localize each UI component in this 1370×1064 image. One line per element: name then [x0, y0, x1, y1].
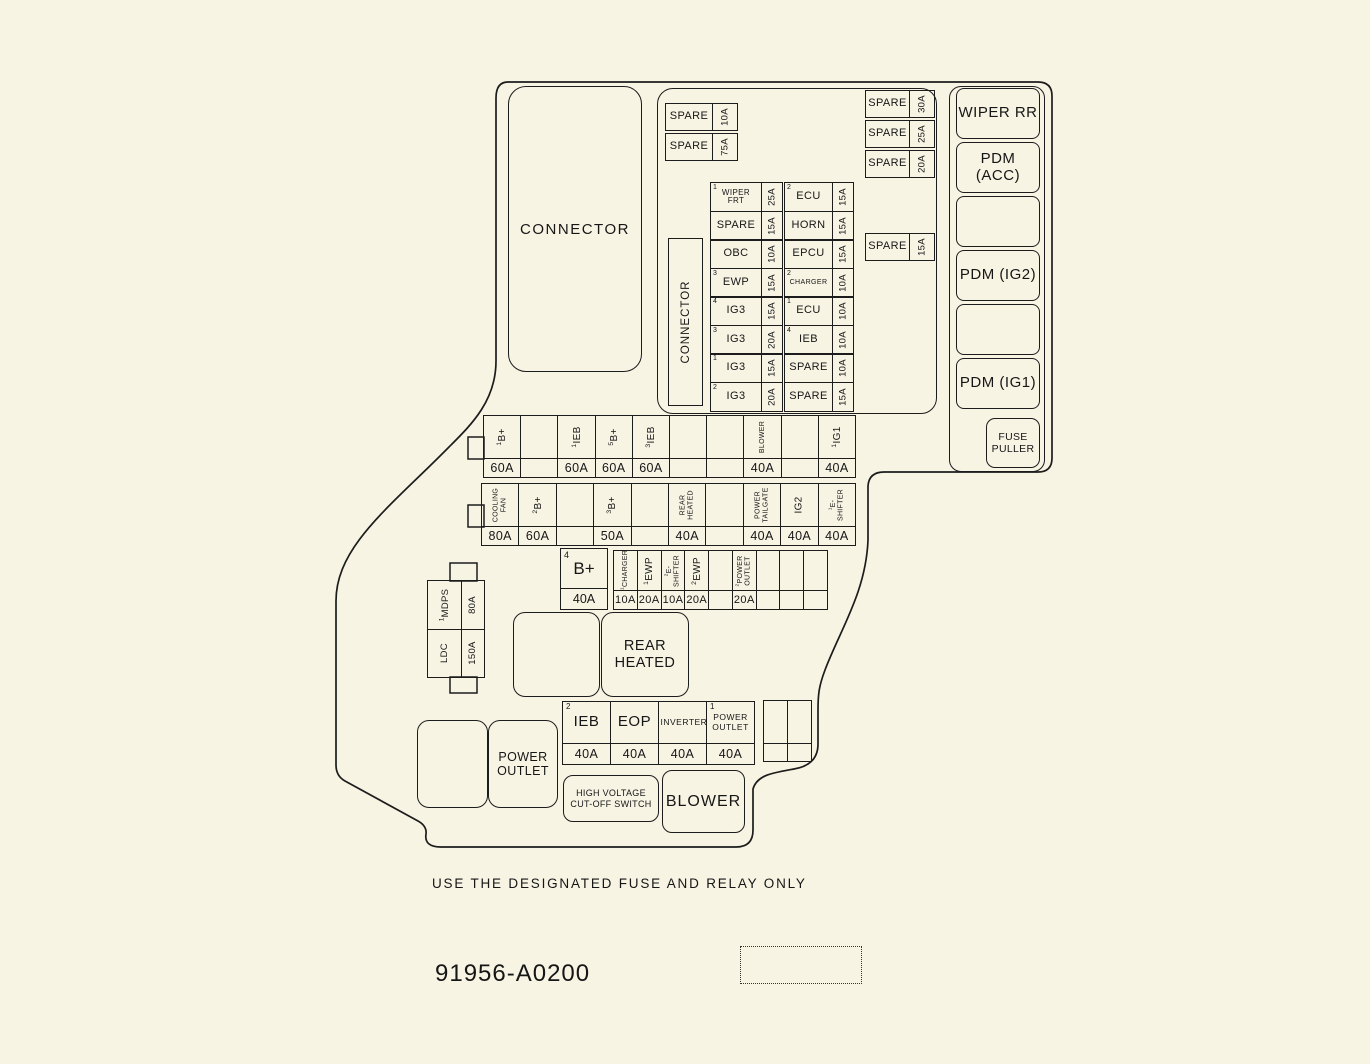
cell-label-area: BLOWER: [744, 416, 780, 458]
cell-label-area: 2E- SHIFTER: [662, 551, 685, 590]
bottom-fuse-row: 2IEB40AEOP40AINVERTER40A1POWER OUTLET40A: [562, 701, 755, 765]
cell-label-area: 2POWER OUTLET: [733, 551, 756, 590]
cell-b+: 1B+60A: [484, 416, 520, 477]
hv-switch-line2: CUT-OFF SWITCH: [570, 799, 651, 809]
big-bplus-label: B+: [573, 559, 594, 579]
cell-empty: [669, 416, 706, 477]
fuse-amp: 10A: [767, 245, 778, 263]
empty-relay-box-2: [417, 720, 488, 808]
fuse-label: IG3: [727, 391, 746, 402]
fuse-sup: 4: [713, 298, 717, 305]
fuse-amp: 20A: [917, 155, 928, 173]
cell-amp: 40A: [669, 526, 705, 545]
hv-switch-line1: HIGH VOLTAGE: [570, 788, 651, 798]
cell-label-area: 1IEB: [558, 416, 594, 458]
cell-amp: 40A: [744, 458, 780, 477]
blower-label: BLOWER: [666, 793, 741, 811]
cell-label-area: EOP: [611, 702, 658, 743]
pdm-box-wiper-rr: WIPER RR: [956, 88, 1040, 139]
main-connector-box: CONNECTOR: [508, 86, 642, 372]
relay-row1-tab: [468, 437, 484, 459]
cell-amp: [782, 458, 818, 477]
fuse-amp: 10A: [838, 302, 849, 320]
fuse-ig3: 2IG320A: [710, 382, 783, 412]
fuse-amp: 25A: [767, 188, 778, 206]
label-placeholder-box: [740, 946, 862, 984]
cell-amp: [757, 590, 780, 609]
cell-label-area: INVERTER: [659, 702, 706, 743]
cell-power-outlet: 2POWER OUTLET20A: [732, 551, 756, 609]
fuse-label: SPARE: [789, 391, 827, 402]
fuse-label: EPCU: [792, 248, 824, 259]
fuse-spare: SPARE30A: [865, 90, 935, 118]
fuse-amp: 15A: [767, 274, 778, 292]
fuse-amp: 15A: [838, 388, 849, 406]
fuse-label: SPARE: [868, 98, 906, 109]
cell-label-area: [670, 416, 706, 458]
power-outlet-box: POWER OUTLET: [488, 720, 558, 808]
fuse-amp-cell: 15A: [832, 212, 853, 240]
fuse-spare: SPARE15A: [784, 382, 854, 412]
fuse-sup: 2: [787, 184, 791, 191]
cell-label: 5B+: [608, 416, 620, 458]
fuse-sup: 2: [787, 270, 791, 277]
part-number: 91956-A0200: [435, 960, 590, 988]
fuse-label: IG3: [727, 362, 746, 373]
cell-amp: 80A: [482, 526, 518, 545]
fuse-label-cell: 2IG3: [711, 383, 761, 411]
hv-cutoff-switch-box: HIGH VOLTAGE CUT-OFF SWITCH: [563, 775, 659, 822]
fuse-amp-cell: 20A: [909, 151, 934, 177]
cell-label: POWER TAILGATE: [754, 484, 769, 526]
cell-empty: [756, 551, 780, 609]
cell-label-area: [780, 551, 803, 590]
empty-fuse-grid: [763, 700, 812, 762]
fuse-amp-cell: 75A: [712, 134, 737, 160]
fuse-label-cell: SPARE: [785, 383, 832, 411]
ldc-mdps-block: 1MDPS 80A LDC 150A: [427, 580, 485, 678]
cell-label-area: [521, 416, 557, 458]
cell-label-area: REAR HEATED: [669, 484, 705, 526]
cell-sup: 1: [831, 443, 838, 447]
fuse-spare: SPARE25A: [865, 120, 935, 148]
cell-amp: 60A: [633, 458, 669, 477]
cell-ewp: 2EWP20A: [684, 551, 708, 609]
cell-power-outlet: 1POWER OUTLET40A: [706, 702, 754, 764]
ldc-amp: 150A: [468, 630, 478, 676]
cell-amp: 40A: [563, 743, 610, 764]
mdps-label: MDPS: [439, 588, 450, 617]
fuse-ecu: 2ECU15A: [784, 182, 854, 212]
fuse-label: SPARE: [789, 362, 827, 373]
cell-sup: 2: [736, 583, 741, 586]
fuse-grid-col-a: 1WIPER FRT25ASPARE15AOBC10A3EWP15A4IG315…: [710, 182, 783, 412]
fuse-label-cell: 2ECU: [785, 183, 832, 211]
cell-label: 1E- SHIFTER: [829, 484, 846, 526]
cell-label: IG2: [794, 484, 805, 526]
fuse-spare: SPARE15A: [710, 211, 783, 241]
cell-inverter: INVERTER40A: [658, 702, 706, 764]
cell-label-area: 1CHARGER: [614, 551, 637, 590]
cell-label-area: [557, 484, 593, 526]
cell-empty: [631, 484, 668, 545]
fuse-label-cell: SPARE: [866, 151, 909, 177]
cell-amp: 40A: [819, 458, 855, 477]
fuse-label-cell: 1IG3: [711, 354, 761, 382]
cell-amp: [709, 590, 732, 609]
cell-amp: [632, 526, 668, 545]
fuse-ecu: 1ECU10A: [784, 296, 854, 326]
cell-amp: [706, 526, 742, 545]
fuse-label-cell: 4IG3: [711, 297, 761, 325]
cell-sup: 1: [621, 587, 626, 590]
cell-amp: [780, 590, 803, 609]
cell-ieb: 1IEB60A: [557, 416, 594, 477]
cell-amp: [521, 458, 557, 477]
cell-label-area: 3B+: [594, 484, 630, 526]
fuse-amp-cell: 30A: [909, 91, 934, 117]
cell-label: BLOWER: [759, 416, 767, 458]
right-column: WIPER RRPDM (ACC)PDM (IG2)PDM (IG1): [956, 88, 1040, 412]
mid-spare: SPARE15A: [865, 233, 935, 263]
cell-sup: 3: [645, 443, 652, 447]
power-outlet-label: POWER OUTLET: [497, 750, 549, 779]
cell-amp: 40A: [744, 526, 780, 545]
small-fuse-strip: 1CHARGER10A1EWP20A2E- SHIFTER10A2EWP20A2…: [613, 550, 828, 610]
fuse-sup: 1: [713, 355, 717, 362]
fuse-label-cell: 1ECU: [785, 297, 832, 325]
fuse-charger: 2CHARGER10A: [784, 268, 854, 298]
cell-label-area: [709, 551, 732, 590]
fuse-amp-cell: 10A: [761, 240, 782, 268]
cell-empty: [705, 484, 742, 545]
cell-label-area: 1POWER OUTLET: [707, 702, 754, 743]
cell-label-area: 3IEB: [633, 416, 669, 458]
cell-amp: 10A: [614, 590, 637, 609]
mdps-fuse: 1MDPS 80A: [428, 581, 484, 629]
cell-label-area: POWER TAILGATE: [744, 484, 780, 526]
fuse-label-cell: SPARE: [866, 91, 909, 117]
fuse-epcu: EPCU15A: [784, 239, 854, 269]
fuse-label-cell: 2CHARGER: [785, 269, 832, 297]
mdps-amp: 80A: [468, 582, 478, 628]
cell-b+: 3B+50A: [593, 484, 630, 545]
fuse-ig3: 3IG320A: [710, 325, 783, 355]
cell-label-area: 2B+: [519, 484, 555, 526]
cell-empty: [781, 416, 818, 477]
cell-empty: [556, 484, 593, 545]
cell-label: COOLING FAN: [493, 484, 508, 526]
cell-amp: 40A: [659, 743, 706, 764]
cell-sup: 2: [665, 573, 670, 576]
fuse-amp: 25A: [917, 125, 928, 143]
cell-label-area: 2EWP: [685, 551, 708, 590]
cell-b+: 2B+60A: [518, 484, 555, 545]
fuse-amp: 15A: [767, 302, 778, 320]
cell-amp: 60A: [596, 458, 632, 477]
fuse-amp: 75A: [720, 138, 731, 156]
big-bplus-amp: 40A: [561, 588, 607, 609]
pdm-box-empty: [956, 196, 1040, 247]
fuse-amp: 15A: [838, 188, 849, 206]
cell-amp: 60A: [519, 526, 555, 545]
fuse-label: SPARE: [670, 141, 708, 152]
cell-label: EOP: [618, 714, 651, 731]
fuse-amp: 10A: [838, 331, 849, 349]
cell-b+: 5B+60A: [595, 416, 632, 477]
fuse-amp: 15A: [838, 245, 849, 263]
fuse-spare: SPARE10A: [665, 103, 738, 131]
fuse-amp-cell: 25A: [761, 183, 782, 211]
fuse-amp-cell: 10A: [832, 354, 853, 382]
fuse-amp-cell: 15A: [832, 383, 853, 411]
fuse-label-cell: SPARE: [866, 121, 909, 147]
cell-sup: 1: [710, 703, 714, 712]
empty-relay-box-1: [513, 612, 600, 697]
fuse-amp: 10A: [838, 274, 849, 292]
fuse-amp: 10A: [838, 359, 849, 377]
cell-ewp: 1EWP20A: [637, 551, 661, 609]
blower-box: BLOWER: [662, 770, 745, 833]
fuse-label-cell: SPARE: [666, 104, 712, 130]
cell-ig1: 1IG140A: [818, 416, 855, 477]
pdm-box-pdm-acc: PDM (ACC): [956, 142, 1040, 193]
fuse-sup: 3: [713, 327, 717, 334]
fuse-puller-label: FUSE PULLER: [989, 431, 1037, 455]
fuse-label: SPARE: [868, 241, 906, 252]
cell-power-tailgate: POWER TAILGATE40A: [743, 484, 780, 545]
relay-row-1: 1B+60A1IEB60A5B+60A3IEB60ABLOWER40A1IG14…: [483, 415, 856, 478]
fuse-amp-cell: 15A: [761, 269, 782, 297]
cell-e-shifter: 1E- SHIFTER40A: [818, 484, 855, 545]
fuse-label-cell: SPARE: [666, 134, 712, 160]
fuse-label: ECU: [796, 305, 820, 316]
cell-amp: 20A: [733, 590, 756, 609]
side-block-top-tab: [450, 563, 477, 581]
cell-amp: 40A: [819, 526, 855, 545]
fuse-label: OBC: [723, 248, 748, 259]
fuse-amp-cell: 15A: [909, 234, 934, 260]
fuse-label: IEB: [799, 334, 818, 345]
cell-label-area: [782, 416, 818, 458]
rear-heated-box: REAR HEATED: [601, 612, 689, 697]
cell-label: 1EWP: [643, 552, 655, 590]
cell-amp: [670, 458, 706, 477]
fuse-wiper-frt: 1WIPER FRT25A: [710, 182, 783, 212]
cell-label-area: 1B+: [484, 416, 520, 458]
fuse-label: SPARE: [868, 158, 906, 169]
cell-ieb: 2IEB40A: [563, 702, 610, 764]
fuse-amp: 20A: [767, 331, 778, 349]
cell-label: 2B+: [531, 484, 543, 526]
cell-label: 3B+: [606, 484, 618, 526]
cell-label-area: [804, 551, 827, 590]
cell-charger: 1CHARGER10A: [614, 551, 637, 609]
fuse-amp-cell: 10A: [832, 269, 853, 297]
cell-sup: 2: [531, 510, 538, 514]
fuse-sup: 3: [713, 270, 717, 277]
cell-rear-heated: REAR HEATED40A: [668, 484, 705, 545]
cell-amp: 20A: [638, 590, 661, 609]
cell-label-area: 1IG1: [819, 416, 855, 458]
cell-label: 2POWER OUTLET: [736, 552, 753, 590]
cell-label: IEB: [574, 714, 600, 731]
fuse-label: SPARE: [717, 220, 755, 231]
fuse-label: SPARE: [670, 111, 708, 122]
cell-label: 2EWP: [691, 552, 703, 590]
cell-ig2: IG240A: [780, 484, 817, 545]
cell-empty: [803, 551, 827, 609]
warning-text: USE THE DESIGNATED FUSE AND RELAY ONLY: [432, 876, 807, 891]
cell-amp: 60A: [484, 458, 520, 477]
fuse-amp-cell: 10A: [832, 297, 853, 325]
fuse-puller-box: FUSE PULLER: [986, 418, 1040, 468]
cell-amp: [557, 526, 593, 545]
fuse-amp-cell: 25A: [909, 121, 934, 147]
fuse-label: HORN: [792, 220, 826, 231]
fuse-spare: SPARE75A: [665, 133, 738, 161]
cell-label-area: [706, 484, 742, 526]
fuse-amp-cell: 20A: [761, 326, 782, 354]
vertical-connector-box: CONNECTOR: [668, 238, 703, 406]
fuse-amp-cell: 10A: [832, 326, 853, 354]
fuse-spare: SPARE20A: [865, 150, 935, 178]
fuse-sup: 1: [713, 184, 717, 191]
cell-label: 1IG1: [831, 416, 843, 458]
relay-row-2: COOLING FAN80A2B+60A3B+50AREAR HEATED40A…: [481, 483, 856, 546]
cell-label: REAR HEATED: [680, 484, 695, 526]
fuse-amp: 30A: [917, 95, 928, 113]
big-bplus-sup: 4: [564, 550, 569, 560]
ldc-fuse: LDC 150A: [428, 629, 484, 678]
fuse-amp: 15A: [767, 217, 778, 235]
fuse-obc: OBC10A: [710, 239, 783, 269]
cell-amp: [707, 458, 743, 477]
cell-label-area: [707, 416, 743, 458]
fuse-amp-cell: 15A: [832, 183, 853, 211]
cell-empty: [520, 416, 557, 477]
fuse-ig3: 4IG315A: [710, 296, 783, 326]
cell-eop: EOP40A: [610, 702, 658, 764]
fuse-label-cell: SPARE: [785, 354, 832, 382]
fuse-label-cell: SPARE: [711, 212, 761, 240]
fuse-amp-cell: 20A: [761, 383, 782, 411]
cell-amp: 20A: [685, 590, 708, 609]
fuse-amp-cell: 15A: [761, 354, 782, 382]
fuse-sup: 1: [787, 298, 791, 305]
fuse-amp: 20A: [767, 388, 778, 406]
cell-label: 1B+: [496, 416, 508, 458]
fuse-amp-cell: 15A: [761, 297, 782, 325]
cell-label: 1IEB: [570, 416, 582, 458]
cell-sup: 3: [606, 510, 613, 514]
fuse-label: IG3: [727, 305, 746, 316]
cell-empty: [779, 551, 803, 609]
fuse-amp-cell: 15A: [761, 212, 782, 240]
fuse-spare: SPARE10A: [784, 353, 854, 383]
fuse-spare: SPARE15A: [865, 233, 935, 261]
cell-amp: 50A: [594, 526, 630, 545]
fuse-label-cell: SPARE: [866, 234, 909, 260]
fuse-label: SPARE: [868, 128, 906, 139]
cell-amp: 40A: [707, 743, 754, 764]
fuse-sup: 4: [787, 327, 791, 334]
cell-sup: 1: [570, 443, 577, 447]
cell-label-area: 2IEB: [563, 702, 610, 743]
fuse-label: CHARGER: [790, 279, 828, 286]
cell-sup: 2: [566, 703, 570, 712]
fuse-label: ECU: [796, 191, 820, 202]
cell-label: 3IEB: [645, 416, 657, 458]
cell-blower: BLOWER40A: [743, 416, 780, 477]
cell-ieb: 3IEB60A: [632, 416, 669, 477]
fuse-label-cell: 3IG3: [711, 326, 761, 354]
top-left-spares: SPARE10ASPARE75A: [665, 103, 738, 163]
cell-label-area: 1E- SHIFTER: [819, 484, 855, 526]
cell-amp: 60A: [558, 458, 594, 477]
cell-amp: 40A: [611, 743, 658, 764]
cell-label: POWER OUTLET: [709, 713, 753, 732]
cell-amp: [804, 590, 827, 609]
cell-amp: 40A: [781, 526, 817, 545]
fuse-label: IG3: [727, 334, 746, 345]
cell-label-area: IG2: [781, 484, 817, 526]
pdm-box-pdm-ig2: PDM (IG2): [956, 250, 1040, 301]
fuse-label-cell: 4IEB: [785, 326, 832, 354]
cell-label-area: COOLING FAN: [482, 484, 518, 526]
fuse-ig3: 1IG315A: [710, 353, 783, 383]
cell-label-area: 5B+: [596, 416, 632, 458]
cell-e-shifter: 2E- SHIFTER10A: [661, 551, 685, 609]
cell-sup: 2: [691, 580, 698, 584]
fuse-label: WIPER FRT: [713, 189, 759, 205]
fuse-label-cell: OBC: [711, 240, 761, 268]
fuse-amp: 15A: [838, 217, 849, 235]
fuse-amp-cell: 10A: [712, 104, 737, 130]
fuse-amp-cell: 15A: [832, 240, 853, 268]
vertical-connector-label: CONNECTOR: [680, 281, 692, 364]
cell-amp: 10A: [662, 590, 685, 609]
cell-label-area: 1EWP: [638, 551, 661, 590]
fuse-label-cell: HORN: [785, 212, 832, 240]
fuse-amp: 10A: [720, 108, 731, 126]
cell-label-area: [632, 484, 668, 526]
pdm-box-pdm-ig1: PDM (IG1): [956, 358, 1040, 409]
cell-empty: [708, 551, 732, 609]
cell-sup: 5: [608, 442, 615, 446]
ldc-label: LDC: [439, 630, 449, 676]
top-right-spares: SPARE30ASPARE25ASPARE20A: [865, 90, 935, 180]
fuse-amp: 15A: [767, 359, 778, 377]
fuse-ieb: 4IEB10A: [784, 325, 854, 355]
big-bplus-fuse: 4 B+ 40A: [560, 548, 608, 610]
side-block-bottom-tab: [450, 677, 477, 693]
fuse-ewp: 3EWP15A: [710, 268, 783, 298]
fuse-box-diagram: CONNECTOR CONNECTOR SPARE10ASPARE75A SPA…: [0, 0, 1370, 1064]
rear-heated-label: REAR HEATED: [614, 638, 676, 671]
fuse-label: EWP: [723, 277, 749, 288]
fuse-label-cell: 3EWP: [711, 269, 761, 297]
cell-label: 2E- SHIFTER: [665, 552, 682, 590]
cell-empty: [706, 416, 743, 477]
cell-label: INVERTER: [661, 718, 705, 727]
mdps-sup: 1: [438, 617, 445, 621]
cell-sup: 1: [496, 442, 503, 446]
main-connector-label: CONNECTOR: [520, 221, 630, 238]
cell-sup: 1: [643, 580, 650, 584]
fuse-grid-col-b: 2ECU15AHORN15AEPCU15A2CHARGER10A1ECU10A4…: [784, 182, 854, 412]
pdm-box-empty: [956, 304, 1040, 355]
